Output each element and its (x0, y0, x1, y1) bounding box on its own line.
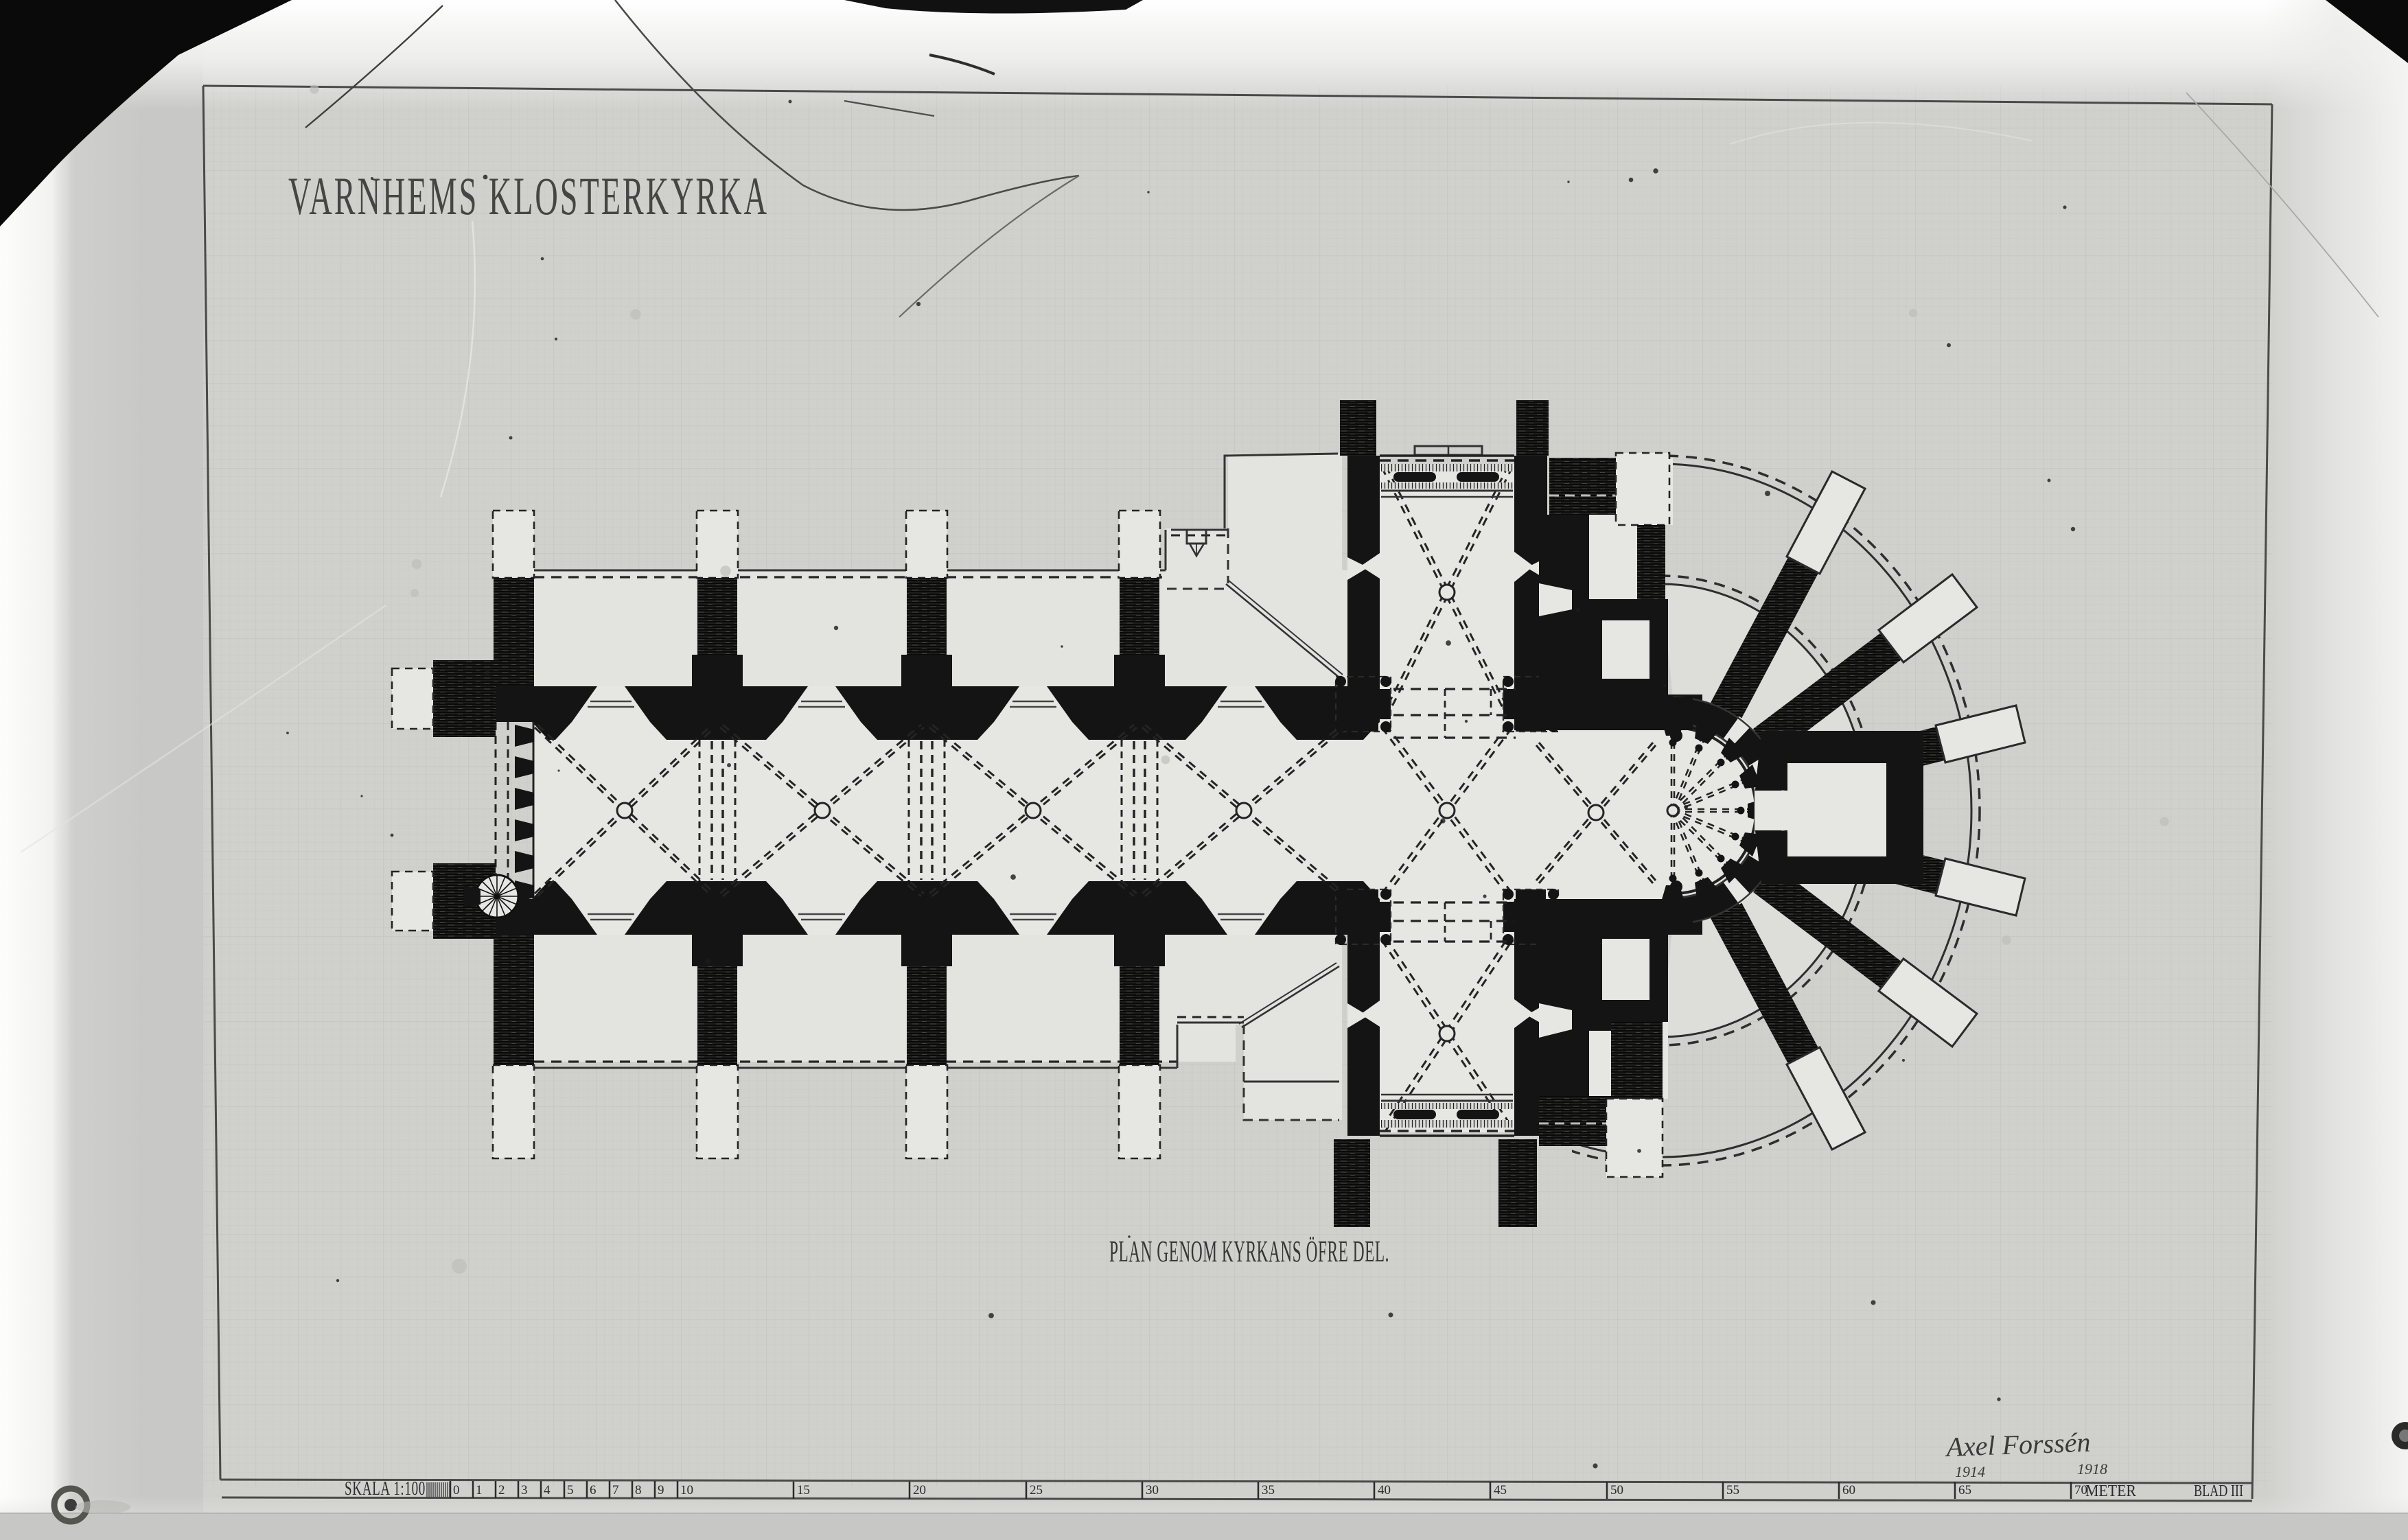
svg-text:50: 50 (1610, 1483, 1623, 1497)
svg-text:65: 65 (1958, 1483, 1971, 1497)
svg-text:40: 40 (1378, 1483, 1391, 1497)
svg-text:6: 6 (590, 1483, 597, 1497)
svg-text:3: 3 (521, 1483, 528, 1497)
svg-text:8: 8 (635, 1483, 642, 1497)
svg-text:60: 60 (1842, 1483, 1855, 1497)
svg-text:BLAD III: BLAD III (2194, 1482, 2243, 1500)
svg-text:7: 7 (612, 1483, 619, 1497)
svg-text:PLAN GENOM KYRKANS ÖFRE DEL.: PLAN GENOM KYRKANS ÖFRE DEL. (1109, 1235, 1389, 1268)
svg-text:VARNHEMS KLOSTERKYRKA: VARNHEMS KLOSTERKYRKA (288, 166, 769, 226)
svg-text:35: 35 (1262, 1483, 1275, 1497)
svg-text:30: 30 (1146, 1483, 1159, 1497)
svg-text:1918: 1918 (2077, 1460, 2107, 1478)
svg-text:20: 20 (913, 1483, 926, 1497)
svg-text:2: 2 (498, 1483, 505, 1497)
svg-text:1: 1 (476, 1483, 483, 1497)
svg-text:0: 0 (453, 1483, 460, 1497)
svg-text:55: 55 (1726, 1483, 1739, 1497)
svg-text:4: 4 (544, 1483, 551, 1497)
svg-text:Axel Forssén: Axel Forssén (1944, 1427, 2091, 1462)
svg-text:1914: 1914 (1955, 1463, 1985, 1480)
svg-text:SKALA 1:100: SKALA 1:100 (345, 1478, 426, 1500)
svg-text:15: 15 (797, 1483, 810, 1497)
svg-text:10: 10 (680, 1483, 693, 1497)
svg-text:5: 5 (567, 1483, 574, 1497)
svg-text:9: 9 (658, 1483, 664, 1497)
svg-text:METER: METER (2085, 1482, 2136, 1500)
svg-text:45: 45 (1494, 1483, 1507, 1497)
svg-text:25: 25 (1030, 1483, 1043, 1497)
